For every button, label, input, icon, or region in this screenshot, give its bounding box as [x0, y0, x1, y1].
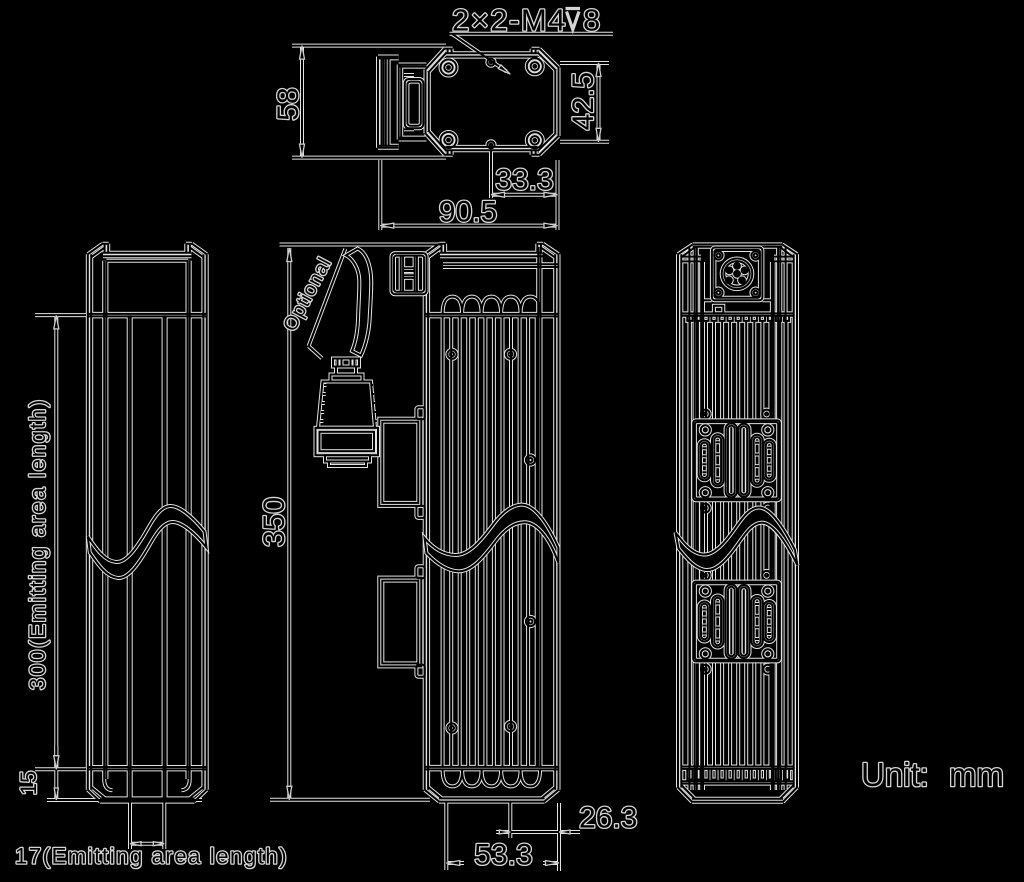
- svg-text:8: 8: [583, 3, 600, 38]
- svg-text:58: 58: [272, 87, 305, 120]
- svg-text:Unit:: Unit:: [861, 756, 929, 793]
- svg-text:15: 15: [16, 771, 41, 795]
- svg-text:2×2-M4: 2×2-M4: [452, 3, 567, 38]
- svg-text:42.5: 42.5: [567, 72, 600, 130]
- svg-text:mm: mm: [949, 756, 1004, 793]
- svg-text:53.3: 53.3: [474, 839, 532, 872]
- svg-text:300(Emitting area length): 300(Emitting area length): [25, 398, 50, 690]
- svg-text:17(Emitting area length): 17(Emitting area length): [15, 844, 288, 869]
- svg-text:33.3: 33.3: [495, 164, 553, 197]
- svg-text:26.3: 26.3: [579, 802, 637, 835]
- svg-text:90.5: 90.5: [439, 196, 497, 229]
- svg-text:350: 350: [258, 497, 291, 547]
